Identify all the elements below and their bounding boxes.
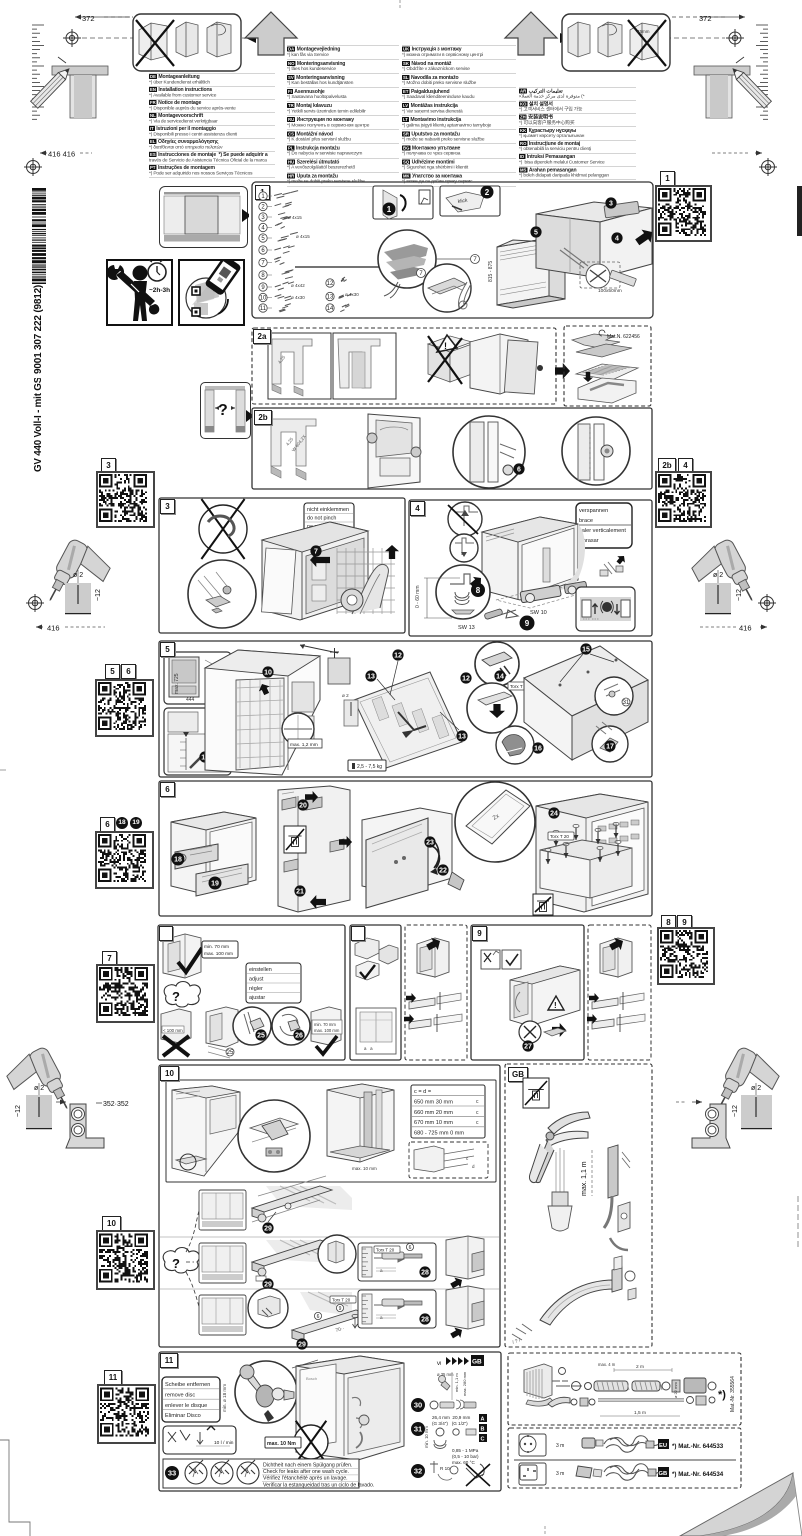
- svg-text:Bosch: Bosch: [306, 1376, 317, 1381]
- svg-text:Verificar la estanqueidad tras: Verificar la estanqueidad tras un ciclo …: [263, 1482, 374, 1488]
- svg-text:30: 30: [414, 1401, 422, 1410]
- svg-text:3 m: 3 m: [556, 1443, 564, 1449]
- svg-text:Scheibe entfernen: Scheibe entfernen: [165, 1382, 210, 1388]
- svg-text:≤: ≤: [436, 1361, 443, 1365]
- svg-text:max. 60 °C: max. 60 °C: [452, 1460, 475, 1465]
- svg-text:remove disc: remove disc: [165, 1392, 195, 1398]
- svg-text:*) Mat.-Nr. 644534: *) Mat.-Nr. 644534: [672, 1471, 724, 1478]
- svg-text:0,85 - 1 MPa: 0,85 - 1 MPa: [452, 1448, 479, 1453]
- svg-text:GB: GB: [659, 1471, 668, 1477]
- svg-text:Vérifiez l'étanchéité après un: Vérifiez l'étanchéité après un lavage.: [263, 1476, 348, 1482]
- svg-text:A: A: [481, 1417, 485, 1423]
- svg-text:*) Mat.-Nr. 644533: *) Mat.-Nr. 644533: [672, 1443, 724, 1450]
- svg-text:max. 280 mm: max. 280 mm: [462, 1371, 467, 1396]
- svg-text:max. 4 m: max. 4 m: [598, 1362, 616, 1367]
- svg-text:max. 10 Nm: max. 10 Nm: [267, 1441, 296, 1447]
- svg-text:31: 31: [414, 1425, 422, 1434]
- svg-text:min. ø 18 mm: min. ø 18 mm: [222, 1384, 227, 1412]
- svg-text:Mat.-Nr. 355564: Mat.-Nr. 355564: [730, 1376, 736, 1412]
- svg-text:enlever le disque: enlever le disque: [165, 1403, 207, 1409]
- svg-text:GB: GB: [472, 1359, 482, 1366]
- svg-text:EU: EU: [659, 1443, 667, 1449]
- svg-text:Eliminar Disco: Eliminar Disco: [165, 1413, 201, 1419]
- svg-text:R 10: R 10: [440, 1466, 450, 1471]
- svg-text:(G 3/4") (G 1/2"): (G 3/4") (G 1/2"): [432, 1421, 468, 1426]
- svg-text:C: C: [481, 1437, 485, 1443]
- svg-text:B: B: [481, 1427, 485, 1433]
- svg-text:ø 22 mm: ø 22 mm: [673, 1382, 678, 1398]
- svg-text:26,4 mm 20,9 mm: 26,4 mm 20,9 mm: [432, 1415, 470, 1420]
- svg-text:3 m: 3 m: [556, 1471, 564, 1477]
- svg-text:min. 1,1 m: min. 1,1 m: [454, 1373, 459, 1392]
- svg-text:10 l / min: 10 l / min: [214, 1440, 234, 1446]
- svg-text:32: 32: [414, 1467, 422, 1476]
- svg-text:min. 10 mm: min. 10 mm: [424, 1426, 429, 1448]
- svg-text:2 m: 2 m: [636, 1364, 644, 1370]
- svg-text:33: 33: [168, 1469, 176, 1478]
- svg-text:Dichtheit nach einem Spülgang: Dichtheit nach einem Spülgang prüfen.: [263, 1463, 352, 1469]
- svg-text:*): *): [718, 1389, 726, 1401]
- svg-text:Check for leaks after one wash: Check for leaks after one wash cycle.: [263, 1469, 349, 1475]
- svg-text:(0,5 - 10 bar): (0,5 - 10 bar): [452, 1454, 479, 1459]
- svg-text:1,5 m: 1,5 m: [634, 1410, 646, 1416]
